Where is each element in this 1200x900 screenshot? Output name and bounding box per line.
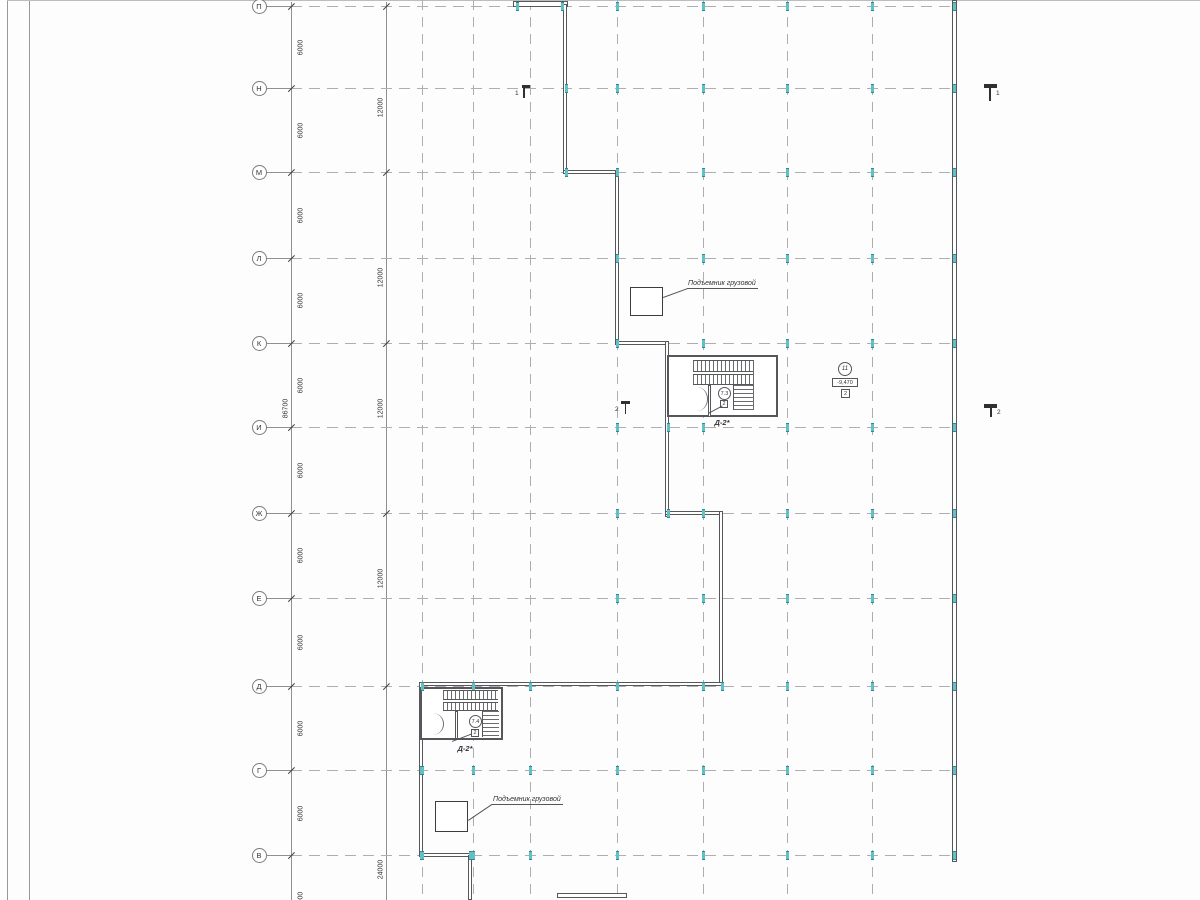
column-tick <box>616 84 619 93</box>
stair-upper-landing-line <box>753 360 754 410</box>
wall-segment-7 <box>719 511 723 686</box>
grid-row-line-Е <box>291 598 955 599</box>
column-tick <box>953 851 956 860</box>
column-tick <box>565 168 568 177</box>
column-tick <box>953 594 956 603</box>
dim-text-6000-5: 6000 <box>297 445 306 495</box>
stair-lower-door-number: 2 <box>473 730 476 736</box>
wall-segment-10 <box>419 853 472 857</box>
grid-row-line-М <box>291 172 955 173</box>
grid-row-line-П <box>291 6 955 7</box>
elevation-value: -9,470 <box>837 380 853 386</box>
stair-upper-number: 7.3 <box>721 391 729 397</box>
column-tick <box>871 851 874 860</box>
column-tick <box>616 682 619 691</box>
axis-bubble-К: К <box>252 336 267 351</box>
column-tick <box>786 254 789 263</box>
axis-bubble-Ж: Ж <box>252 506 267 521</box>
grid-row-line-И <box>291 427 955 428</box>
column-tick <box>786 766 789 775</box>
column-tick <box>871 339 874 348</box>
column-tick <box>667 509 670 518</box>
column-tick <box>871 594 874 603</box>
dimension-line-inner <box>291 2 292 900</box>
column-tick <box>420 766 423 775</box>
axis-bubble-В: В <box>252 848 267 863</box>
column-tick <box>702 339 705 348</box>
stair-upper-number-circle: 7.3 <box>718 387 731 400</box>
stair-upper-flight-right <box>733 385 753 410</box>
generated-grid-layer: ПНМЛКИЖЕДГВ60006000600060006000600060006… <box>0 0 1200 900</box>
stair-lower-number-circle: 7.4 <box>469 715 482 728</box>
dim-text-6000-9: 6000 <box>297 788 306 838</box>
lift-upper-label: Подъемник грузовой <box>688 280 756 287</box>
axis-bubble-leader <box>266 343 291 344</box>
column-tick <box>871 2 874 11</box>
column-tick <box>871 254 874 263</box>
elevation-door-box: 2 <box>841 389 850 398</box>
column-tick <box>786 339 789 348</box>
column-tick <box>953 509 956 518</box>
grid-row-line-Н <box>291 88 955 89</box>
dim-text-6000-6: 6000 <box>297 530 306 580</box>
wall-segment-8 <box>419 682 723 686</box>
column-tick <box>469 851 472 860</box>
stair-lower-tag: Д-2* <box>448 744 482 753</box>
column-tick <box>786 423 789 432</box>
column-tick <box>871 766 874 775</box>
column-tick <box>953 339 956 348</box>
section-2-left-stem <box>625 404 627 414</box>
wall-segment-2 <box>563 170 619 174</box>
column-tick <box>616 766 619 775</box>
column-tick <box>702 509 705 518</box>
dim-text-6000-0: 6000 <box>297 22 306 72</box>
dim-text-6000-2: 6000 <box>297 190 306 240</box>
section-1-right-flag <box>984 84 997 88</box>
elevation-box: -9,470 <box>832 378 858 387</box>
wall-segment-6 <box>665 511 723 515</box>
stair-lower-door-box: 2 <box>471 729 479 737</box>
section-2-right-stem <box>990 408 992 417</box>
lift-upper-underline <box>687 288 758 289</box>
column-tick <box>871 423 874 432</box>
lift-lower-label: Подъемник грузовой <box>493 796 561 803</box>
column-tick <box>871 168 874 177</box>
grid-row-line-Л <box>291 258 955 259</box>
column-tick <box>871 509 874 518</box>
stair-lower-mid-wall <box>455 711 458 739</box>
elevation-door-number: 2 <box>844 391 847 397</box>
dim-text-6000-4: 6000 <box>297 360 306 410</box>
dim-text-12000-2: 12000 <box>377 383 386 433</box>
section-1-right-stem <box>989 88 991 101</box>
stair-lower-flight-right <box>482 711 499 737</box>
axis-bubble-П: П <box>252 0 267 14</box>
column-tick <box>953 2 956 11</box>
column-tick <box>786 851 789 860</box>
stair-upper-tag: Д-2* <box>705 418 739 427</box>
axis-bubble-leader <box>266 770 291 771</box>
dim-text-12000-4: 24000 <box>377 844 386 894</box>
dim-text-12000-3: 12000 <box>377 553 386 603</box>
axis-bubble-Е: Е <box>252 591 267 606</box>
dim-text-6000-7: 6000 <box>297 617 306 667</box>
dim-text-overall: 86700 <box>282 383 291 433</box>
axis-bubble-leader <box>266 258 291 259</box>
section-1-right-label: 1 <box>996 90 1000 97</box>
dim-text-6000-8: 6000 <box>297 703 306 753</box>
axis-bubble-Л: Л <box>252 251 267 266</box>
column-tick <box>702 254 705 263</box>
dim-text-6000-10: 6000 <box>297 874 306 900</box>
column-tick <box>702 851 705 860</box>
axis-bubble-Н: Н <box>252 81 267 96</box>
column-tick <box>561 2 564 11</box>
axis-bubble-leader <box>266 686 291 687</box>
stair-upper-rail <box>693 371 753 375</box>
lift-lower-underline <box>492 804 563 805</box>
column-tick <box>529 766 532 775</box>
room-number: 11 <box>842 366 848 372</box>
column-tick <box>953 168 956 177</box>
column-tick <box>667 423 670 432</box>
dim-text-6000-3: 6000 <box>297 275 306 325</box>
axis-bubble-leader <box>266 513 291 514</box>
dim-text-6000-1: 6000 <box>297 105 306 155</box>
column-tick <box>953 423 956 432</box>
grid-row-line-Г <box>291 770 955 771</box>
axis-bubble-Г: Г <box>252 763 267 778</box>
axis-bubble-И: И <box>252 420 267 435</box>
section-2-left-label: 2 <box>615 406 619 413</box>
wall-segment-12 <box>557 893 627 898</box>
section-1-left-label: 1 <box>515 90 519 97</box>
axis-bubble-leader <box>266 855 291 856</box>
column-tick <box>616 168 619 177</box>
column-tick <box>786 594 789 603</box>
axis-bubble-Д: Д <box>252 679 267 694</box>
column-tick <box>953 682 956 691</box>
axis-bubble-leader <box>266 598 291 599</box>
lift-shaft-lower <box>435 801 468 832</box>
dimension-line-outer <box>386 2 387 900</box>
section-2-right-label: 2 <box>997 409 1001 416</box>
wall-segment-4 <box>615 341 669 345</box>
floor-plan-sheet: ПНМЛКИЖЕДГВ60006000600060006000600060006… <box>0 0 1200 900</box>
dim-text-12000-0: 12000 <box>377 82 386 132</box>
column-tick <box>786 168 789 177</box>
column-tick <box>516 2 519 11</box>
column-tick <box>953 84 956 93</box>
room-number-circle: 11 <box>838 362 852 376</box>
column-tick <box>565 84 568 93</box>
column-tick <box>472 766 475 775</box>
column-tick <box>871 682 874 691</box>
column-tick <box>786 84 789 93</box>
column-tick <box>702 682 705 691</box>
column-tick <box>702 84 705 93</box>
column-tick <box>786 682 789 691</box>
axis-bubble-leader <box>266 88 291 89</box>
column-tick <box>616 423 619 432</box>
stair-lower-rail <box>443 699 498 703</box>
wall-segment-11 <box>468 855 472 900</box>
column-tick <box>420 851 423 860</box>
grid-row-line-Ж <box>291 513 955 514</box>
column-tick <box>421 682 424 691</box>
column-tick <box>616 509 619 518</box>
section-1-left-stem <box>523 88 525 98</box>
column-tick <box>702 168 705 177</box>
column-tick <box>786 509 789 518</box>
column-tick <box>702 766 705 775</box>
column-tick <box>529 851 532 860</box>
column-tick <box>702 594 705 603</box>
column-tick <box>472 851 475 860</box>
column-tick <box>616 339 619 348</box>
column-tick <box>616 2 619 11</box>
column-tick <box>702 2 705 11</box>
grid-row-line-Д <box>291 686 955 687</box>
column-tick <box>721 682 724 691</box>
column-tick <box>616 851 619 860</box>
column-tick <box>953 766 956 775</box>
column-tick <box>871 84 874 93</box>
axis-bubble-М: М <box>252 165 267 180</box>
column-tick <box>786 2 789 11</box>
axis-bubble-leader <box>266 172 291 173</box>
axis-bubble-leader <box>266 6 291 7</box>
grid-row-line-В <box>291 855 955 856</box>
stair-lower-number: 7.4 <box>472 719 480 725</box>
column-tick <box>953 254 956 263</box>
column-tick <box>529 682 532 691</box>
column-tick <box>616 254 619 263</box>
dim-text-12000-1: 12000 <box>377 252 386 302</box>
column-tick <box>616 594 619 603</box>
lift-shaft-upper <box>630 287 663 316</box>
